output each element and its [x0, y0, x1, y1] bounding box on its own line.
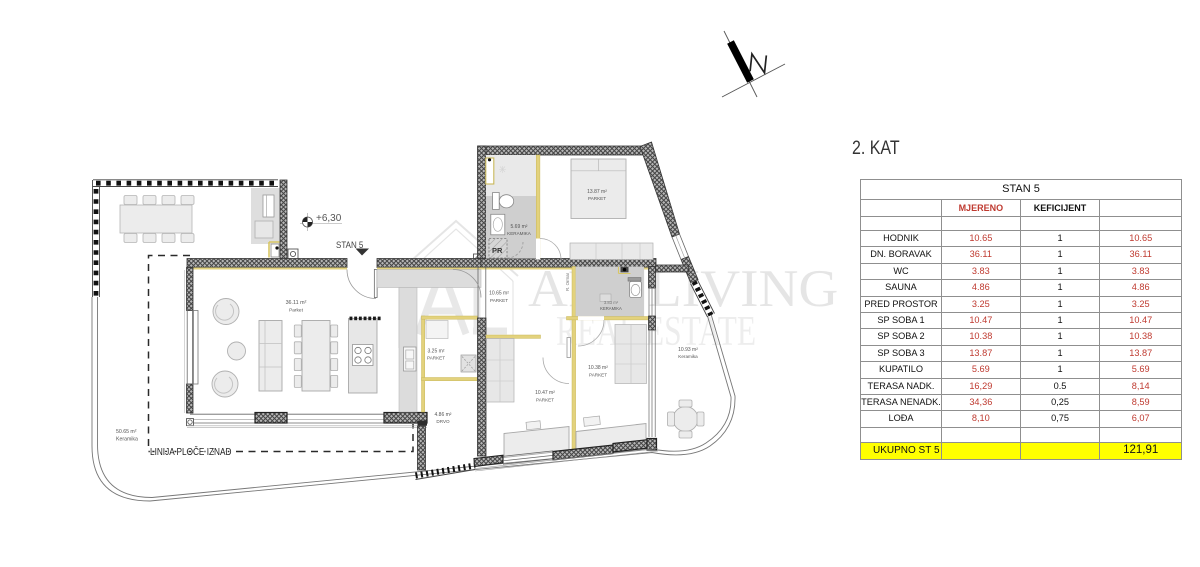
svg-text:Keramika: Keramika: [116, 437, 138, 443]
svg-text:PARKET: PARKET: [536, 398, 554, 403]
svg-text:DRVO: DRVO: [436, 419, 450, 424]
svg-text:PARKET: PARKET: [588, 196, 606, 201]
svg-text:KERAMIKA: KERAMIKA: [600, 306, 622, 311]
svg-text:10.47 m²: 10.47 m²: [535, 390, 555, 396]
svg-text:PARKET: PARKET: [589, 373, 607, 378]
svg-text:PR: PR: [492, 246, 503, 255]
svg-text:10.38 m²: 10.38 m²: [588, 365, 608, 371]
svg-text:13.87 m²: 13.87 m²: [587, 189, 607, 195]
svg-text:50.65 m²: 50.65 m²: [116, 429, 137, 435]
svg-text:10.65 m²: 10.65 m²: [489, 291, 509, 297]
svg-text:Parket: Parket: [289, 308, 304, 314]
svg-text:KERAMIKA: KERAMIKA: [507, 231, 532, 236]
svg-text:PARKET: PARKET: [490, 298, 508, 303]
svg-text:R. Ormar: R. Ormar: [565, 272, 570, 291]
svg-text:3.83 m²: 3.83 m²: [604, 300, 619, 305]
svg-text:36.11 m²: 36.11 m²: [286, 300, 307, 306]
svg-text:4.86 m²: 4.86 m²: [435, 412, 452, 418]
svg-text:PARKET: PARKET: [427, 356, 445, 361]
svg-text:3.25 m²: 3.25 m²: [428, 349, 445, 355]
svg-text:Keramika: Keramika: [678, 354, 698, 359]
svg-text:5.69 m²: 5.69 m²: [511, 224, 528, 230]
svg-text:LINIJA PLOČE IZNAD: LINIJA PLOČE IZNAD: [150, 446, 232, 457]
svg-text:10.93 m²: 10.93 m²: [678, 347, 698, 353]
svg-text:+6,30: +6,30: [316, 213, 342, 224]
